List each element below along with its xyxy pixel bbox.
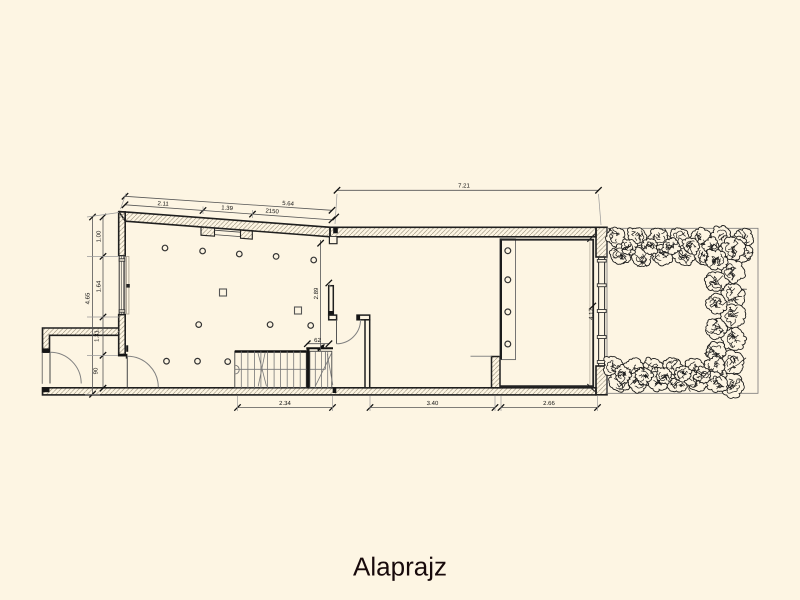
svg-text:Alaprajz: Alaprajz xyxy=(353,552,447,582)
svg-text:2150: 2150 xyxy=(265,208,279,216)
svg-text:3.40: 3.40 xyxy=(427,400,439,407)
svg-text:7.21: 7.21 xyxy=(458,183,470,190)
svg-text:1.39: 1.39 xyxy=(221,204,234,212)
svg-text:4.17: 4.17 xyxy=(588,308,595,320)
svg-text:62: 62 xyxy=(314,337,321,344)
svg-text:1.64: 1.64 xyxy=(96,280,103,292)
svg-text:2.89: 2.89 xyxy=(313,287,320,299)
svg-text:4.65: 4.65 xyxy=(85,292,92,304)
svg-text:5.64: 5.64 xyxy=(282,200,295,208)
svg-text:2.66: 2.66 xyxy=(543,400,555,407)
svg-text:2.11: 2.11 xyxy=(157,200,169,208)
svg-text:1.31: 1.31 xyxy=(94,330,101,342)
svg-text:1.00: 1.00 xyxy=(96,230,103,242)
svg-text:90: 90 xyxy=(93,367,100,374)
svg-text:2.34: 2.34 xyxy=(279,400,291,407)
